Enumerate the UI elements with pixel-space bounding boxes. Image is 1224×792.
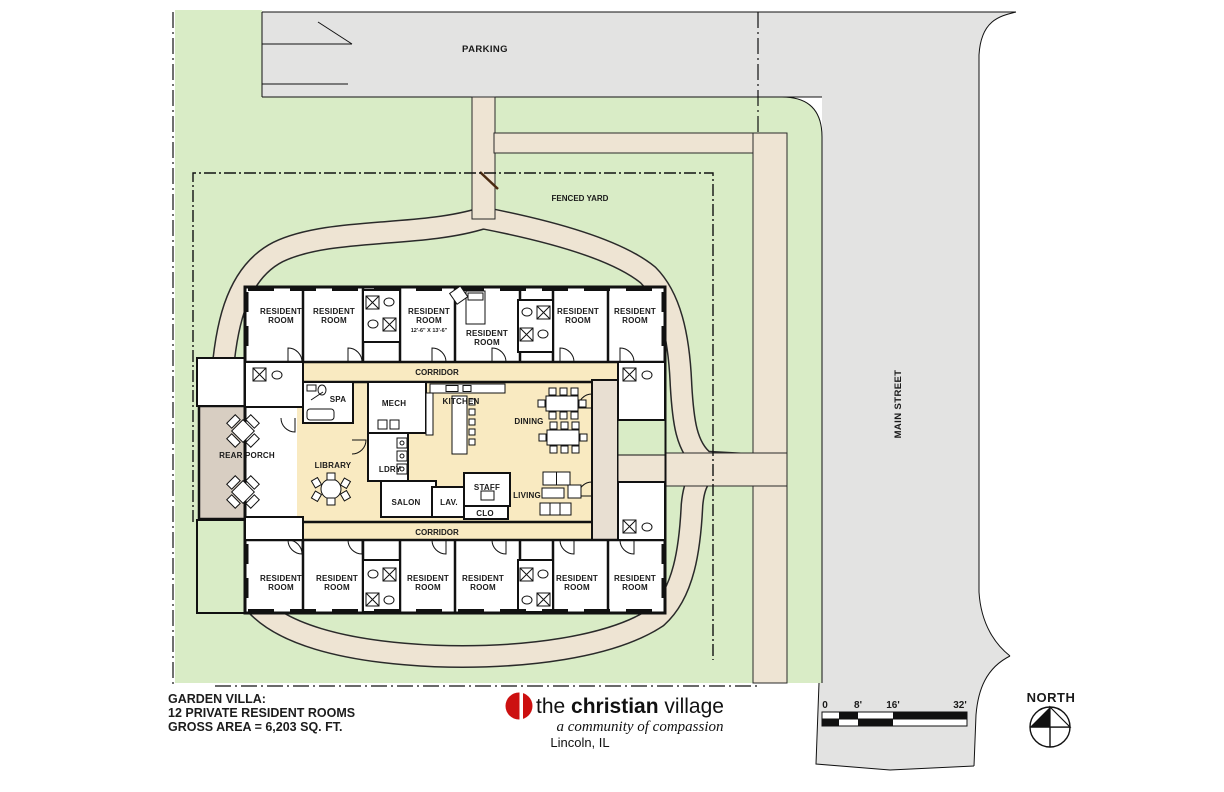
svg-text:RESIDENT: RESIDENT	[466, 329, 508, 338]
north-arrow: NORTH	[1027, 690, 1076, 747]
site-plan-drawing: PARKING FENCED YARD MAIN STREET ENTRY	[0, 0, 1224, 792]
svg-text:RESIDENT: RESIDENT	[260, 574, 302, 583]
svg-text:ROOM: ROOM	[622, 583, 648, 592]
building: RESIDENT ROOM RESIDENT ROOM RESIDENT ROO…	[197, 286, 665, 613]
logo-wordmark: the christian village	[536, 695, 724, 718]
svg-text:ROOM: ROOM	[416, 316, 442, 325]
svg-text:LDRY: LDRY	[379, 465, 402, 474]
title-block: GARDEN VILLA: 12 PRIVATE RESIDENT ROOMS …	[168, 692, 355, 734]
svg-text:RESIDENT: RESIDENT	[407, 574, 449, 583]
svg-text:RESIDENT: RESIDENT	[614, 574, 656, 583]
svg-text:RESIDENT: RESIDENT	[557, 307, 599, 316]
svg-text:ROOM: ROOM	[415, 583, 441, 592]
main-street-pavement	[816, 12, 1016, 770]
svg-text:LIBRARY: LIBRARY	[315, 461, 352, 470]
svg-text:KITCHEN: KITCHEN	[443, 397, 480, 406]
logo-city: Lincoln, IL	[550, 735, 609, 750]
entry-vestibule	[592, 380, 618, 540]
svg-text:RESIDENT: RESIDENT	[556, 574, 598, 583]
logo: the christian village a community of com…	[506, 691, 724, 750]
svg-text:8': 8'	[854, 700, 862, 711]
svg-text:RESIDENT: RESIDENT	[614, 307, 656, 316]
svg-text:ROOM: ROOM	[268, 583, 294, 592]
parking-label: PARKING	[462, 44, 508, 55]
north-walk	[494, 133, 787, 153]
svg-text:ROOM: ROOM	[324, 583, 350, 592]
svg-text:ROOM: ROOM	[622, 316, 648, 325]
svg-text:ROOM: ROOM	[321, 316, 347, 325]
svg-text:32': 32'	[953, 700, 967, 711]
svg-text:ROOM: ROOM	[470, 583, 496, 592]
svg-text:ROOM: ROOM	[268, 316, 294, 325]
svg-text:LIVING: LIVING	[513, 491, 541, 500]
svg-text:RESIDENT: RESIDENT	[408, 307, 450, 316]
svg-text:RESIDENT: RESIDENT	[316, 574, 358, 583]
svg-text:CORRIDOR: CORRIDOR	[415, 368, 459, 377]
svg-text:CORRIDOR: CORRIDOR	[415, 528, 459, 537]
svg-text:16': 16'	[886, 700, 900, 711]
svg-text:GARDEN VILLA:: GARDEN VILLA:	[168, 692, 266, 706]
svg-text:ROOM: ROOM	[474, 338, 500, 347]
svg-text:ROOM: ROOM	[564, 583, 590, 592]
svg-text:DINING: DINING	[514, 417, 543, 426]
main-street-label: MAIN STREET	[893, 370, 904, 439]
svg-text:NORTH: NORTH	[1027, 690, 1076, 705]
svg-text:RESIDENT: RESIDENT	[462, 574, 504, 583]
svg-text:RESIDENT: RESIDENT	[260, 307, 302, 316]
logo-tagline: a community of compassion	[556, 719, 723, 735]
left-patio	[197, 520, 245, 613]
right-gap-walk	[618, 455, 665, 484]
logo-mark	[506, 693, 533, 720]
east-sidewalk	[753, 133, 787, 683]
svg-text:GROSS AREA = 6,203 SQ. FT.: GROSS AREA = 6,203 SQ. FT.	[168, 720, 342, 734]
svg-text:CLO: CLO	[476, 509, 494, 518]
parking-driveway	[472, 97, 495, 219]
svg-text:12'-6" X 13'-6": 12'-6" X 13'-6"	[411, 328, 448, 334]
svg-text:MECH: MECH	[382, 399, 406, 408]
fenced-yard-label: FENCED YARD	[552, 194, 609, 203]
staff-desk	[481, 491, 494, 500]
svg-text:LAV.: LAV.	[440, 498, 458, 507]
svg-text:SPA: SPA	[330, 395, 346, 404]
svg-text:RESIDENT: RESIDENT	[313, 307, 355, 316]
left-wing	[197, 358, 245, 406]
left-column-bottom	[245, 517, 303, 540]
svg-text:STAFF: STAFF	[474, 483, 500, 492]
svg-text:SALON: SALON	[392, 498, 421, 507]
svg-text:12 PRIVATE RESIDENT ROOMS: 12 PRIVATE RESIDENT ROOMS	[168, 706, 355, 720]
svg-text:REAR PORCH: REAR PORCH	[219, 451, 275, 460]
svg-text:0: 0	[822, 700, 828, 711]
svg-text:ROOM: ROOM	[565, 316, 591, 325]
scale-bar-segments	[822, 712, 967, 726]
